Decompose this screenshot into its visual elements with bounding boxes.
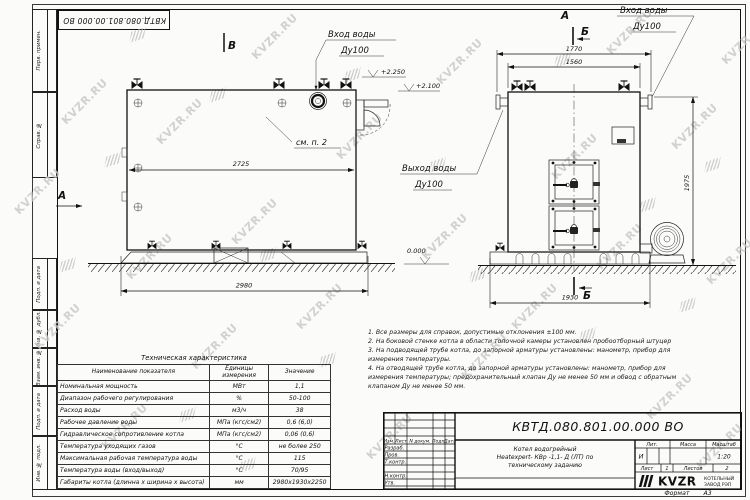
- watermark-text: KVZR.RU: [229, 196, 280, 247]
- watermark-text: KVZR.RU: [32, 301, 83, 352]
- spec-cell: Рабочее давление воды: [58, 417, 210, 429]
- spec-cell: МВт: [209, 381, 269, 393]
- format-value: А3: [703, 490, 711, 497]
- spec-cell: %: [209, 393, 269, 405]
- spec-cell: Габариты котла (длинна х ширина х высота…: [58, 477, 210, 489]
- spec-cell: Максимальная рабочая температура воды: [58, 453, 210, 465]
- watermark-text: KVZR.RU: [509, 281, 560, 332]
- col-list: Лист: [394, 438, 407, 444]
- watermark-text: KVZR.RU: [334, 111, 385, 162]
- watermark-text: KVZR.RU: [294, 281, 345, 332]
- sheets-value: 2: [725, 466, 728, 472]
- row-utv: Утв.: [385, 481, 396, 487]
- watermark-text: KVZR.RU: [549, 131, 600, 182]
- doc-number: КВТД.080.801.00.000 ВО: [512, 419, 684, 434]
- scale-value: 1:20: [717, 454, 731, 461]
- spec-cell: МПа (кгс/см2): [209, 417, 269, 429]
- note-item: 2. На боковой стенке котла в области топ…: [368, 338, 686, 347]
- note-item: 1. Все размеры для справок, допустимые о…: [368, 329, 686, 338]
- watermark-glyph: [104, 152, 120, 168]
- notes-block: 1. Все размеры для справок, допустимые о…: [368, 329, 686, 392]
- spec-cell: не более 250: [269, 441, 331, 453]
- description-line-2: Heatexpert- КВр -1,1- Д (ЛТ) по: [497, 454, 594, 461]
- spec-cell: Температура воды (вход/выход): [58, 465, 210, 477]
- title-block: КВТД.080.801.00.000 ВО Изм. Лист N докум…: [383, 412, 742, 490]
- watermark-glyph: [704, 157, 720, 173]
- spec-cell: Номинальная мощность: [58, 381, 210, 393]
- spec-cell: 1,1: [269, 381, 331, 393]
- company-logo: KVZR КОТЕЛЬНЫЙ ЗАВОД РЭП: [639, 475, 734, 489]
- watermark-glyph: [554, 52, 570, 68]
- watermark-glyph: [639, 197, 655, 213]
- watermark-glyph: [129, 27, 145, 43]
- col-izm: Изм.: [384, 438, 395, 444]
- spec-cell: 0,06 (0,6): [269, 429, 331, 441]
- watermark-text: KVZR.RU: [434, 36, 485, 87]
- drawing-sheet: KVZR.RUKVZR.RUKVZR.RUKVZR.RUKVZR.RUKVZR.…: [0, 0, 750, 500]
- watermark-glyph: [429, 157, 445, 173]
- company-logo-text: KVZR: [658, 475, 697, 489]
- watermark-text: KVZR.RU: [594, 221, 645, 272]
- col-dokum: N докум.: [409, 438, 430, 444]
- spec-cell: °С: [209, 441, 269, 453]
- spec-header-units: Единицы измерения: [209, 365, 269, 381]
- col-data: Дата: [443, 438, 456, 444]
- spec-row: Максимальная рабочая температура воды°С1…: [58, 453, 331, 465]
- spec-cell: Гидравлическое сопротивление котла: [58, 429, 210, 441]
- spec-header-row: Наименование показателя Единицы измерени…: [58, 365, 331, 381]
- spec-table: Наименование показателя Единицы измерени…: [57, 364, 331, 489]
- spec-row: Температура воды (вход/выход)°С70/95: [58, 465, 331, 477]
- format-label: Формат: [664, 490, 689, 497]
- watermark-text: KVZR.RU: [59, 76, 110, 127]
- spec-row: Габариты котла (длинна х ширина х высота…: [58, 477, 331, 489]
- watermark-text: KVZR.RU: [704, 236, 750, 287]
- watermark-glyph: [469, 267, 485, 283]
- spec-cell: 70/95: [269, 465, 331, 477]
- watermark-glyph: [59, 257, 75, 273]
- row-tkontr: Т.контр.: [385, 460, 407, 466]
- watermark-text: KVZR.RU: [154, 96, 205, 147]
- spec-row: Номинальная мощностьМВт1,1: [58, 381, 331, 393]
- spec-row: Температура уходящих газов°Сне более 250: [58, 441, 331, 453]
- spec-table-title: Техническая характеристика: [57, 354, 331, 362]
- lit-header: Лит.: [645, 442, 658, 448]
- spec-cell: 38: [269, 405, 331, 417]
- watermark-glyph: [679, 297, 695, 313]
- company-name-1: КОТЕЛЬНЫЙ: [704, 475, 734, 482]
- description-line-3: техническому заданию: [508, 462, 582, 469]
- spec-cell: мм: [209, 477, 269, 489]
- mass-header: Масса: [680, 442, 696, 448]
- spec-cell: °С: [209, 453, 269, 465]
- company-name-2: ЗАВОД РЭП: [704, 482, 731, 488]
- watermark-glyph: [209, 87, 225, 103]
- row-razrab: Разраб.: [385, 446, 405, 452]
- spec-header-name: Наименование показателя: [58, 365, 210, 381]
- watermark-text: KVZR.RU: [249, 11, 300, 62]
- watermark-text: KVZR.RU: [604, 6, 655, 57]
- spec-row: Расход водым3/ч38: [58, 405, 331, 417]
- watermark-text: KVZR.RU: [12, 166, 63, 217]
- watermark-text: KVZR.RU: [719, 16, 750, 67]
- spec-header-value: Значение: [269, 365, 331, 381]
- spec-cell: Диапазон рабочего регулирования: [58, 393, 210, 405]
- spec-table-section: Техническая характеристика Наименование …: [57, 354, 331, 489]
- sheet-label: Лист: [640, 466, 655, 472]
- note-item: 3. На подводящей трубе котла, до запорно…: [368, 347, 686, 365]
- note-item: 4. На отводящей трубе котла, до запорной…: [368, 365, 686, 392]
- spec-cell: 2980х1930х2250: [269, 477, 331, 489]
- spec-row: Рабочее давление водыМПа (кгс/см2)0,6 (6…: [58, 417, 331, 429]
- scale-header: Масштаб: [712, 442, 736, 448]
- spec-row: Гидравлическое сопротивление котлаМПа (к…: [58, 429, 331, 441]
- spec-cell: 0,6 (6,0): [269, 417, 331, 429]
- spec-cell: Температура уходящих газов: [58, 441, 210, 453]
- sheets-label: Листов: [683, 466, 703, 472]
- watermark-glyph: [259, 247, 275, 263]
- spec-cell: °С: [209, 465, 269, 477]
- spec-cell: Расход воды: [58, 405, 210, 417]
- spec-cell: МПа (кгс/см2): [209, 429, 269, 441]
- watermark-text: KVZR.RU: [124, 231, 175, 282]
- spec-cell: 115: [269, 453, 331, 465]
- spec-cell: м3/ч: [209, 405, 269, 417]
- spec-cell: 50-100: [269, 393, 331, 405]
- spec-row: Диапазон рабочего регулирования%50-100: [58, 393, 331, 405]
- lit-value: И: [639, 453, 644, 461]
- row-prov: Пров.: [385, 453, 400, 459]
- description-line-1: Котел водогрейный: [514, 446, 577, 453]
- watermark-text: KVZR.RU: [669, 101, 720, 152]
- row-nkontr: Н.контр.: [385, 474, 407, 480]
- watermark-text: KVZR.RU: [419, 211, 470, 262]
- watermark-glyph: [344, 67, 360, 83]
- format-strip: Формат А3: [628, 490, 748, 497]
- sheet-value: 1: [665, 466, 668, 472]
